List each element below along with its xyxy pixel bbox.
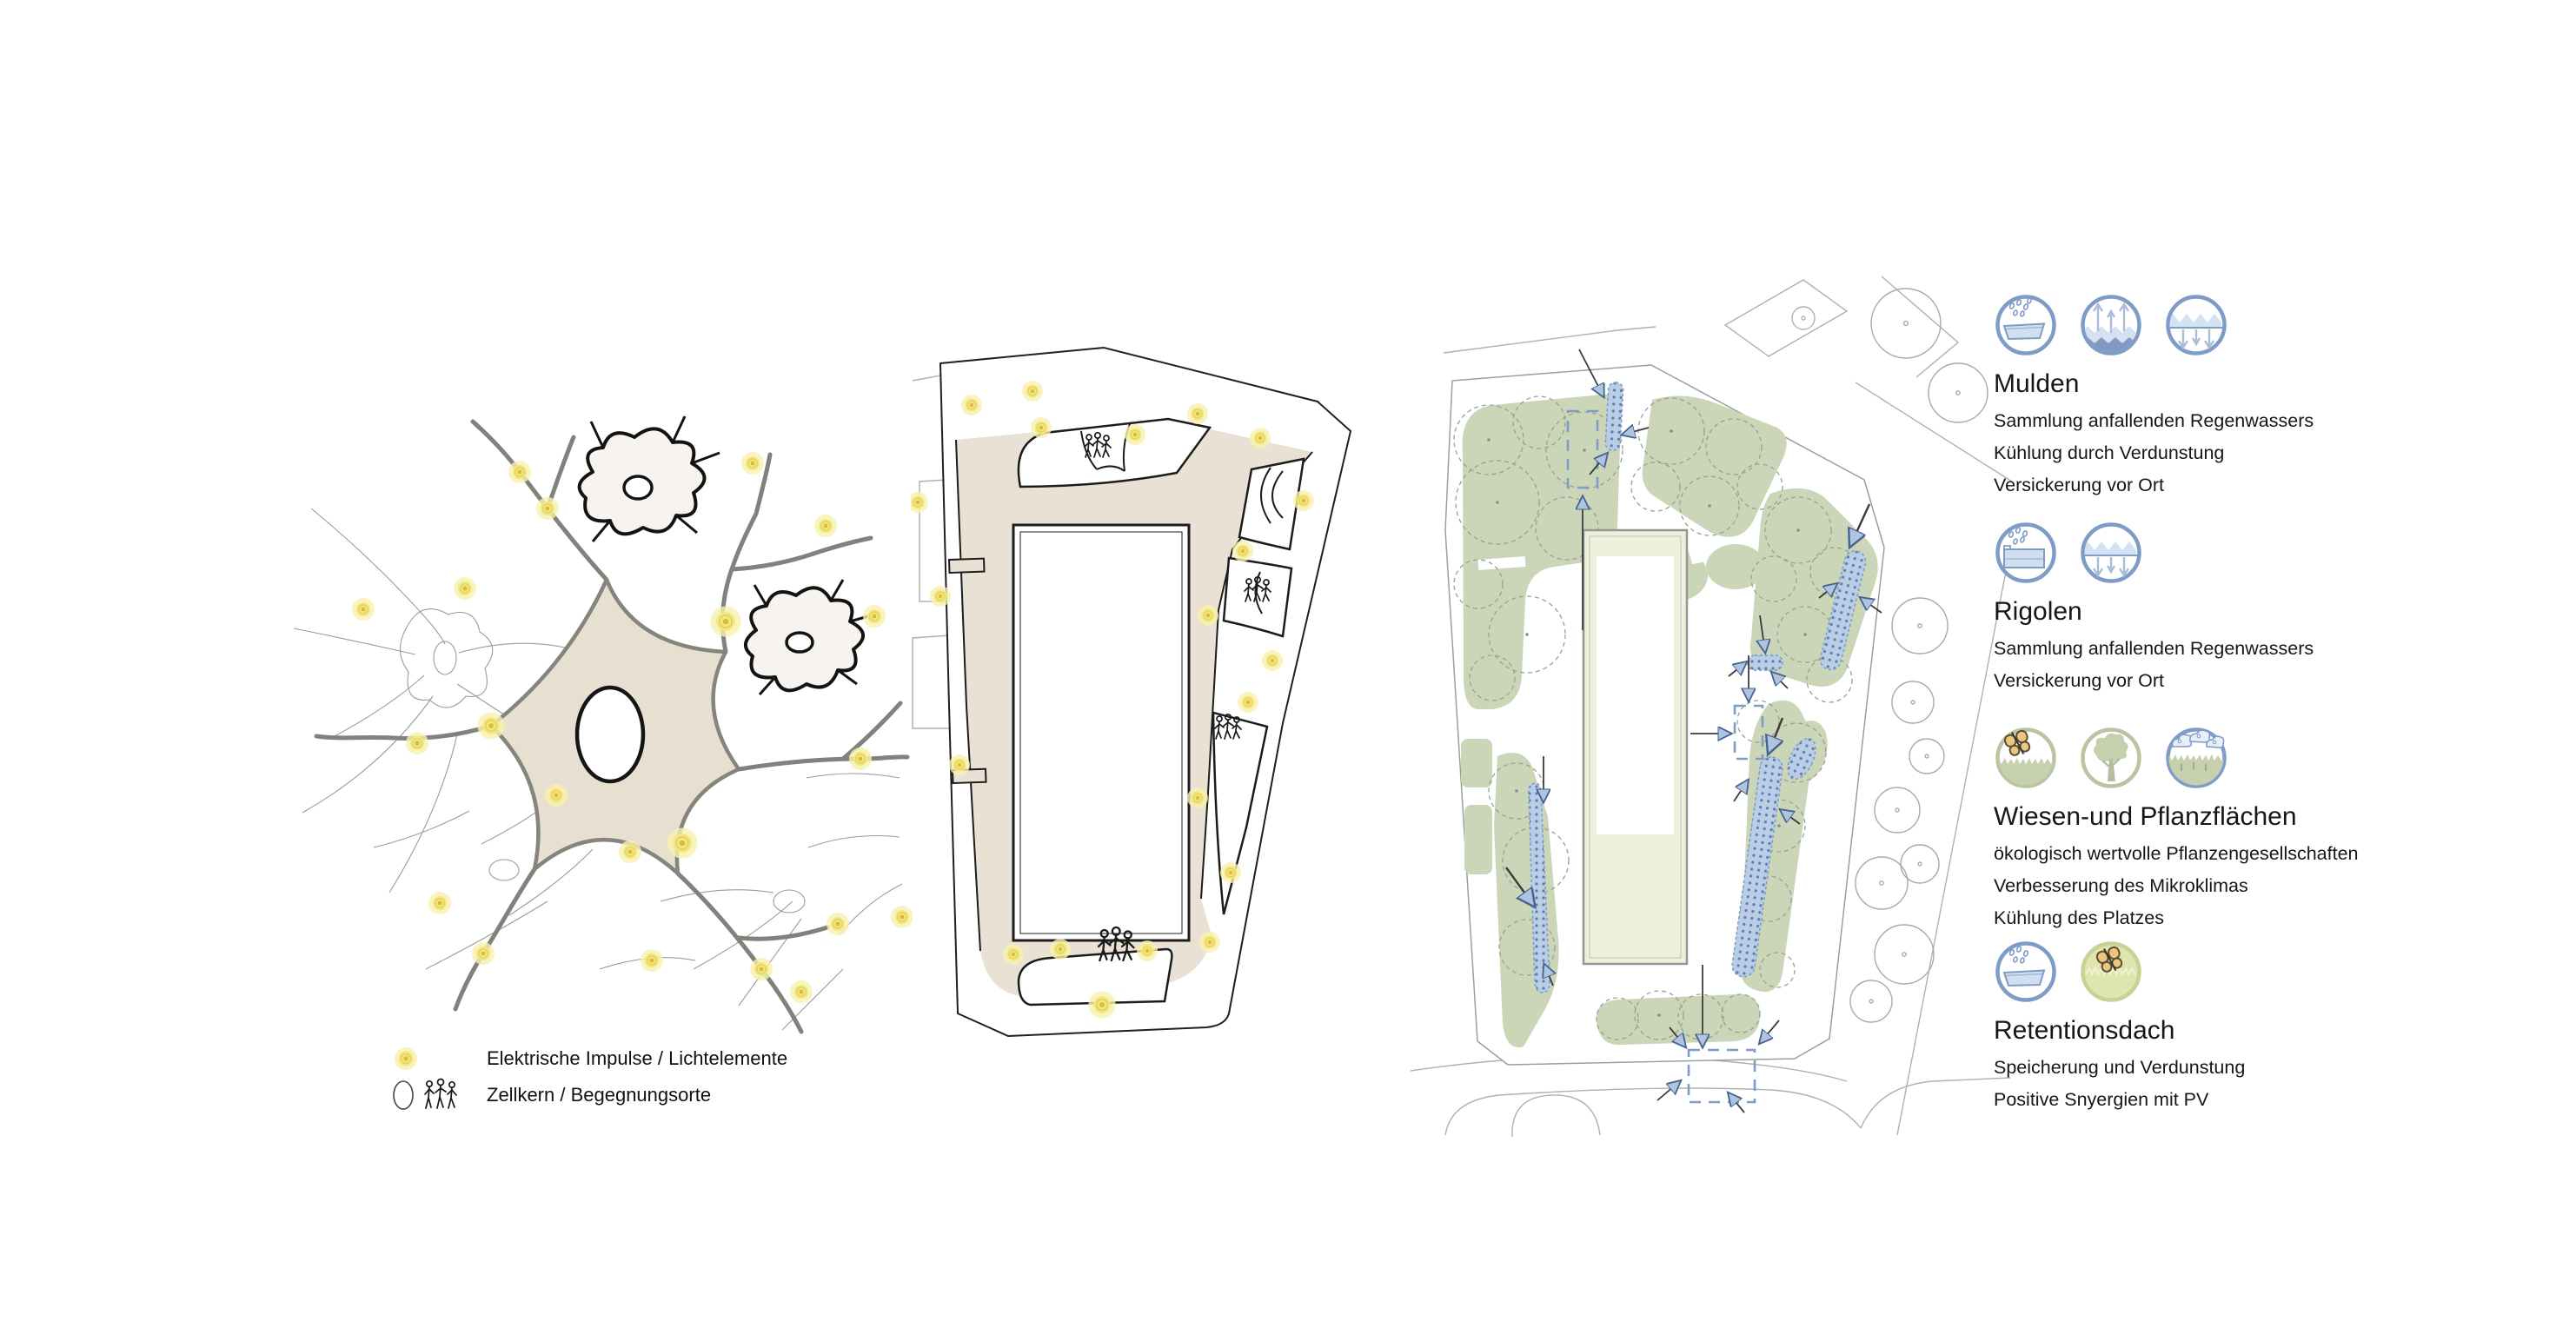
clouds-meadow-icon [2164, 726, 2228, 790]
legend-section-wiesen: Wiesen-und Pflanzflächen ökologisch wert… [1994, 725, 2533, 929]
cell-people-icon [391, 1075, 487, 1115]
section-line: Kühlung des Platzes [1994, 907, 2533, 929]
butterfly-roof-icon [2079, 940, 2143, 1004]
rain-collection-icon [1994, 940, 2058, 1004]
legend-row-cell: Zellkern / Begegnungsorte [391, 1075, 711, 1115]
rain-storage-icon [1994, 521, 2058, 585]
section-line: Sammlung anfallenden Regenwassers [1994, 637, 2533, 660]
central-nucleus [577, 688, 643, 781]
section-line: Kühlung durch Verdunstung [1994, 442, 2533, 464]
neuron-concept-diagram [287, 361, 913, 1047]
light-dot-icon [391, 1044, 487, 1073]
legend-section-retentionsdach: Retentionsdach Speicherung und Verdunstu… [1994, 939, 2533, 1111]
section-title: Rigolen [1994, 596, 2533, 628]
small-neuron-top [580, 416, 720, 541]
legend-section-mulden: Mulden Sammlung anfallenden Regenwassers… [1994, 292, 2533, 496]
building-retention-roof [1583, 530, 1687, 964]
section-title: Retentionsdach [1994, 1015, 2533, 1046]
tree-icon [2079, 726, 2143, 790]
legend-section-rigolen: Rigolen Sammlung anfallenden Regenwasser… [1994, 520, 2533, 692]
section-line: Speicherung und Verdunstung [1994, 1056, 2533, 1079]
section-line: Positive Snyergien mit PV [1994, 1088, 2533, 1111]
section-title: Wiesen-und Pflanzflächen [1994, 801, 2533, 833]
section-line: Versickerung vor Ort [1994, 474, 2533, 496]
section-line: Sammlung anfallenden Regenwassers [1994, 409, 2533, 432]
section-line: ökologisch wertvolle Pflanzengesellschaf… [1994, 842, 2533, 865]
section-line: Versickerung vor Ort [1994, 669, 2533, 692]
infiltration-icon [2079, 521, 2143, 585]
rain-collection-icon [1994, 293, 2058, 357]
legend-label: Elektrische Impulse / Lichtelemente [487, 1047, 787, 1070]
legend-row-light: Elektrische Impulse / Lichtelemente [391, 1039, 787, 1079]
butterfly-meadow-icon [1994, 726, 2058, 790]
evaporation-icon [2079, 293, 2143, 357]
infiltration-icon [2164, 293, 2228, 357]
poster-page: { "left_panel": { "name": "Neuron concep… [0, 0, 2576, 1342]
site-plan-water-landscape [1395, 269, 2012, 1139]
section-line: Verbesserung des Mikroklimas [1994, 874, 2533, 897]
section-title: Mulden [1994, 369, 2533, 400]
small-neuron-right [746, 580, 874, 694]
site-plan-lighting [911, 341, 1363, 1045]
legend-label: Zellkern / Begegnungsorte [487, 1084, 711, 1106]
building-footprint [1013, 525, 1189, 940]
side-entrance [949, 559, 984, 573]
